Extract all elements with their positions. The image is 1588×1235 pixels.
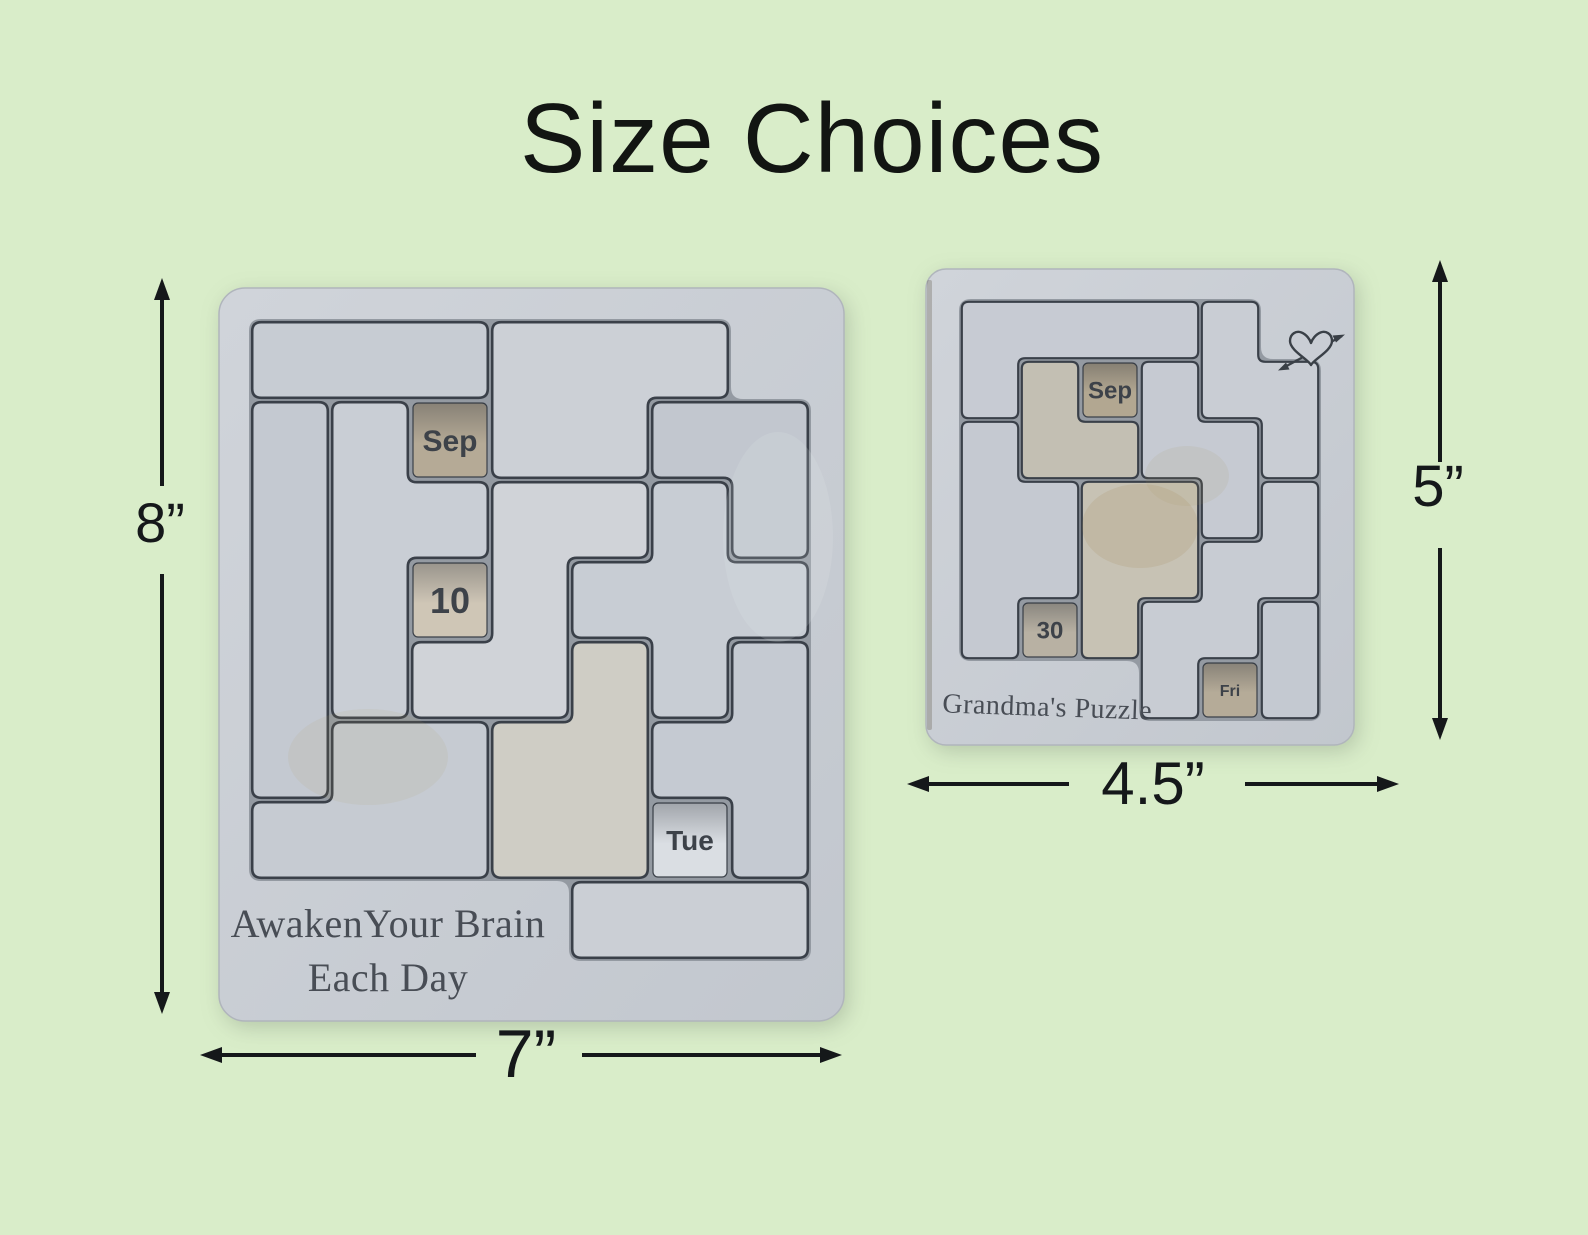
width-label-small: 4.5” <box>1101 750 1204 817</box>
engraving-line: Each Day <box>308 955 469 1000</box>
height-dimension-large: 8” <box>126 274 198 1018</box>
arrowhead-up-icon <box>154 278 170 300</box>
arrowhead-right-icon <box>820 1047 842 1063</box>
board-rough-edge <box>927 280 932 730</box>
page-title: Size Choices <box>520 82 1104 195</box>
width-dimension-large: 7” <box>194 1020 846 1090</box>
large-puzzle-board: Sep10TueAwakenYour BrainEach Day <box>218 287 845 1022</box>
arrowhead-right-icon <box>1377 776 1399 792</box>
wood-stain <box>723 432 833 642</box>
small-puzzle-photo: Sep30FriGrandma's Puzzle <box>925 268 1355 746</box>
arrowhead-down-icon <box>154 992 170 1014</box>
wood-stain <box>288 709 448 805</box>
month-window-small-label: Sep <box>1088 378 1132 405</box>
width-dimension-small: 4.5” <box>901 750 1405 818</box>
puzzle-piece <box>1262 602 1318 718</box>
puzzle-piece <box>252 322 488 398</box>
height-label-large: 8” <box>135 491 185 554</box>
date-window-small-label: 30 <box>1037 618 1064 645</box>
arrowhead-down-icon <box>1432 718 1448 740</box>
height-dimension-small: 5” <box>1404 256 1476 744</box>
engraving-line: AwakenYour Brain <box>231 901 546 946</box>
small-puzzle-board: Sep30FriGrandma's Puzzle <box>925 268 1355 746</box>
arrowhead-left-icon <box>200 1047 222 1063</box>
wood-stain <box>1145 446 1229 506</box>
date-window-large-label: 10 <box>430 580 470 621</box>
arrowhead-up-icon <box>1432 260 1448 282</box>
width-label-large: 7” <box>496 1016 556 1092</box>
puzzle-piece <box>572 882 808 958</box>
month-window-large-label: Sep <box>422 425 477 458</box>
large-puzzle-photo: Sep10TueAwakenYour BrainEach Day <box>218 287 845 1022</box>
weekday-window-small-label: Fri <box>1220 683 1240 700</box>
weekday-window-large-label: Tue <box>666 825 714 856</box>
size-choices-graphic: Size Choices Sep10TueAwakenYour BrainEac… <box>0 0 1588 1235</box>
height-label-small: 5” <box>1412 454 1464 519</box>
arrowhead-left-icon <box>907 776 929 792</box>
